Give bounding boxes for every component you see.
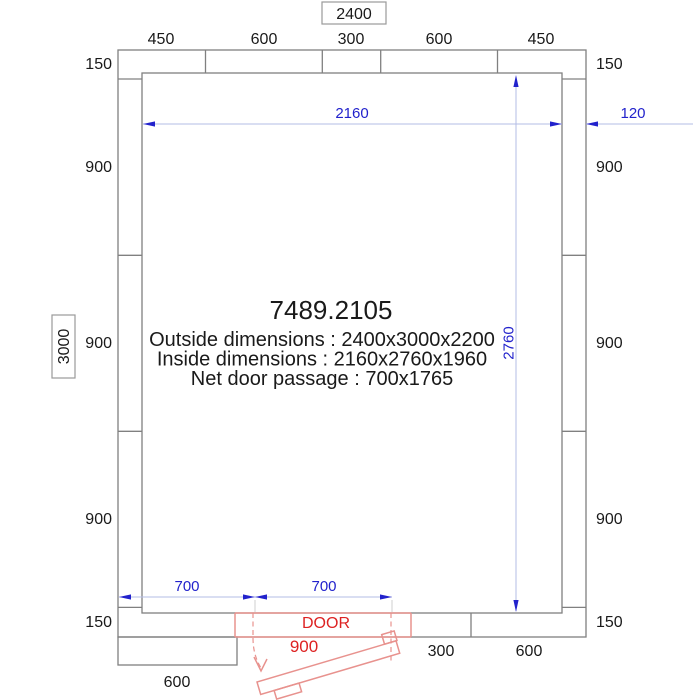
dim-door-passage-label: 700 xyxy=(311,578,336,595)
panel-label-bottom-1: 600 xyxy=(516,643,543,660)
drawing-canvas: DOOR 900 2160 120 2760 700 700 2400 3000 xyxy=(0,0,700,700)
door-leaf xyxy=(257,641,400,695)
net-door-passage-text: Net door passage : 700x1765 xyxy=(191,368,453,390)
panel-label-top-4: 450 xyxy=(528,31,555,48)
door-leaf-handle xyxy=(274,683,301,699)
panel-label-top-2: 300 xyxy=(338,31,365,48)
door-frame-width-label: 900 xyxy=(290,637,318,656)
dim-inside-height-label: 2760 xyxy=(501,326,518,359)
dim-arrow-left-icon xyxy=(119,594,131,599)
cold-room-plan-drawing: DOOR 900 2160 120 2760 700 700 2400 3000 xyxy=(0,0,700,700)
panel-label-right-2: 900 xyxy=(596,335,623,352)
dim-arrow-up-icon xyxy=(513,75,518,87)
dim-arrow-right-icon xyxy=(243,594,255,599)
panel-label-left-3: 900 xyxy=(85,511,112,528)
dim-arrow-left-icon xyxy=(143,121,155,126)
door-swing-arrowhead xyxy=(254,657,267,671)
panel-label-right-1: 900 xyxy=(596,159,623,176)
panel-label-right-0: 150 xyxy=(596,56,623,73)
panel-label-left-1: 900 xyxy=(85,159,112,176)
bottom-offset-panel xyxy=(118,637,237,665)
dim-arrow-down-icon xyxy=(513,600,518,612)
dim-arrow-left-icon xyxy=(586,121,598,126)
dim-arrow-left-icon xyxy=(255,594,267,599)
door-leaf-group xyxy=(254,631,403,700)
panel-label-top-0: 450 xyxy=(148,31,175,48)
panel-label-bottom-offset: 600 xyxy=(164,674,191,691)
product-code: 7489.2105 xyxy=(270,295,393,325)
panel-label-left-4: 150 xyxy=(85,614,112,631)
panel-label-top-3: 600 xyxy=(426,31,453,48)
panel-label-top-1: 600 xyxy=(251,31,278,48)
panel-label-bottom-0: 300 xyxy=(428,643,455,660)
panel-label-right-3: 900 xyxy=(596,511,623,528)
panel-label-left-0: 150 xyxy=(85,56,112,73)
door-label: DOOR xyxy=(302,615,350,632)
dim-wall-thickness-label: 120 xyxy=(620,105,645,122)
overall-width-label: 2400 xyxy=(336,6,372,23)
panel-label-right-4: 150 xyxy=(596,614,623,631)
dim-arrow-right-icon xyxy=(550,121,562,126)
panel-label-left-2: 900 xyxy=(85,335,112,352)
dim-arrow-right-icon xyxy=(380,594,392,599)
dim-inside-width-label: 2160 xyxy=(335,105,368,122)
dim-door-offset-label: 700 xyxy=(174,578,199,595)
door-assembly: DOOR 900 xyxy=(235,613,411,700)
overall-height-label: 3000 xyxy=(56,329,73,365)
product-info-block: 7489.2105 Outside dimensions : 2400x3000… xyxy=(149,295,495,390)
